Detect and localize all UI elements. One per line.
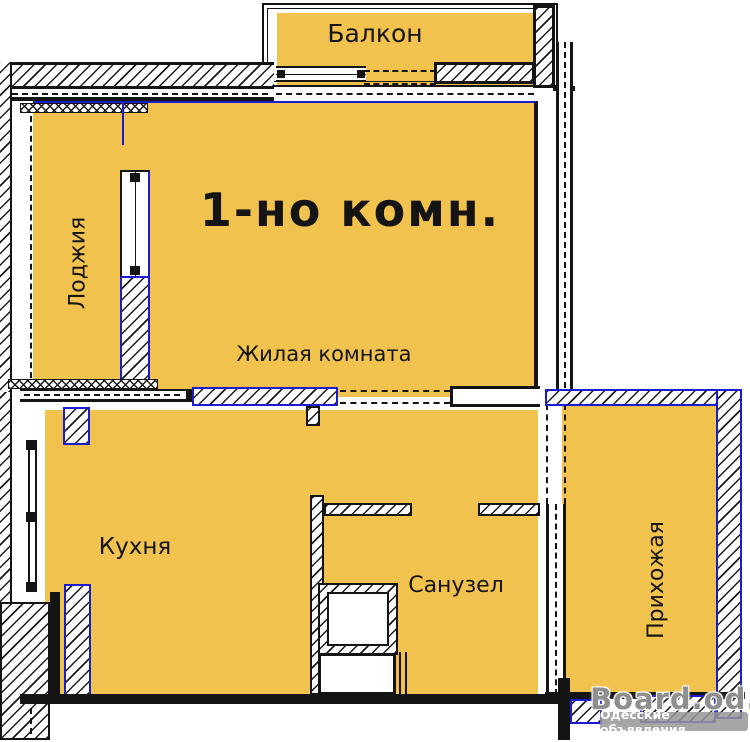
top-wall-hatch <box>8 62 274 89</box>
room-label-hallway-text: Прихожая <box>646 521 668 639</box>
loggia-top-crosshatch <box>20 103 148 113</box>
left-bottom-tick <box>30 708 32 734</box>
watermark-caption-text: Одесские объявления <box>600 707 748 737</box>
watermark-caption: Одесские объявления <box>600 712 748 731</box>
kitchen-window-mullion-1 <box>26 440 37 450</box>
mid-opening-dash-2 <box>340 402 450 404</box>
mid-opening-dash-1 <box>340 390 450 392</box>
kitchen-window-mullion-3 <box>26 582 37 592</box>
balcony-window <box>276 66 366 82</box>
shaft-door-jamb <box>399 652 407 694</box>
top-wall-dash-line <box>12 93 268 95</box>
room-label-loggia: Лоджия <box>48 186 108 340</box>
mid-window-dash <box>24 394 180 396</box>
mid-window-sill <box>20 389 192 402</box>
plan-title: 1-но комн. <box>180 178 520 242</box>
new-partition-stub <box>122 103 124 145</box>
room-label-balcony: Балкон <box>300 16 450 50</box>
kitchen-window-mullion-2 <box>26 512 37 522</box>
mid-wall-stub <box>306 406 320 426</box>
kitchen-blue-pier-bottom <box>64 584 91 696</box>
left-wall-bottom <box>0 602 50 740</box>
room-label-bathroom: Санузел <box>376 571 536 601</box>
kitchen-blue-pier-top <box>63 407 90 445</box>
mid-crosshatch <box>8 379 158 389</box>
room-label-balcony-text: Балкон <box>327 21 422 46</box>
balcony-sill-dash <box>276 93 534 95</box>
balcony-wall-segment <box>434 62 535 84</box>
room-label-living: Жилая комната <box>214 340 434 368</box>
balcony-opening-dash-1 <box>364 70 436 72</box>
bathroom-top-wall-left <box>324 503 412 516</box>
hallway-left-wall-bottom <box>558 678 570 740</box>
room-label-living-text: Жилая комната <box>237 344 412 365</box>
loggia-pier-wall <box>120 276 150 390</box>
lower-shaft <box>318 653 396 695</box>
left-wall-mid <box>0 392 12 604</box>
room-label-bathroom-text: Санузел <box>408 575 504 597</box>
mid-white-wall <box>450 386 540 407</box>
floor-plan: Балкон 1-но комн. Жилая комната Лоджия К… <box>0 0 750 742</box>
loggia-window <box>120 170 150 278</box>
left-wall-bottom-edge <box>50 592 60 704</box>
plan-title-text: 1-но комн. <box>200 187 500 233</box>
hall-divider-dashed <box>546 404 566 504</box>
neighbor-wall <box>556 42 573 398</box>
balcony-right-wall <box>533 5 555 88</box>
loggia-boundary-dash <box>30 116 32 388</box>
balcony-opening-dash-2 <box>364 83 436 85</box>
room-label-hallway: Прихожая <box>627 500 687 660</box>
mid-blue-wall <box>192 387 338 406</box>
left-wall-top <box>0 62 12 392</box>
bathroom-top-wall-right <box>478 503 540 516</box>
hallway-top-wall <box>545 389 730 406</box>
room-label-kitchen-text: Кухня <box>99 536 171 559</box>
bottom-wall <box>20 694 560 704</box>
hallway-right-wall <box>716 389 742 719</box>
top-wall-cavity <box>8 89 274 101</box>
room-label-kitchen: Кухня <box>55 532 215 562</box>
room-label-loggia-text: Лоджия <box>67 217 89 310</box>
hall-divider-solid <box>546 504 566 695</box>
